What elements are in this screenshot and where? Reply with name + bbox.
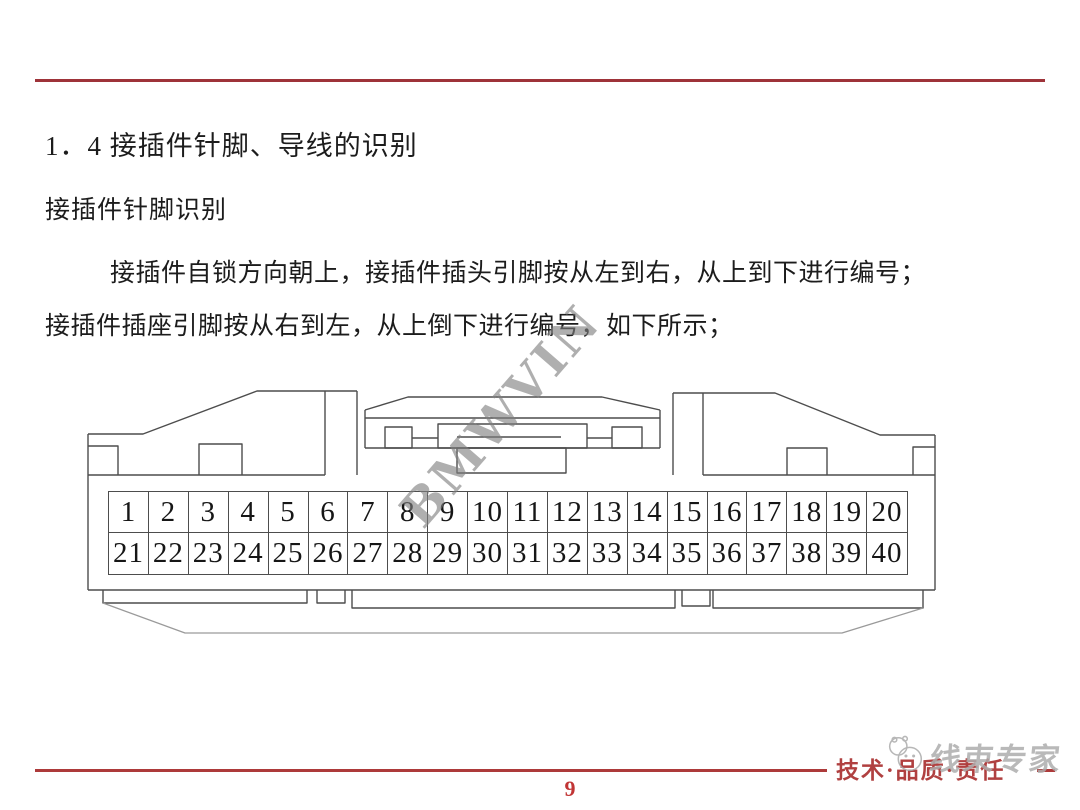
pin-cell-4: 4 — [229, 492, 269, 533]
pin-cell-21: 21 — [109, 533, 149, 574]
pin-cell-2: 2 — [149, 492, 189, 533]
pin-cell-14: 14 — [628, 492, 668, 533]
pin-cell-35: 35 — [668, 533, 708, 574]
pin-cell-31: 31 — [508, 533, 548, 574]
pin-cell-20: 20 — [867, 492, 907, 533]
paragraph-line-2: 接插件插座引脚按从右到左，从上倒下进行编号，如下所示； — [45, 306, 734, 342]
pin-cell-40: 40 — [867, 533, 907, 574]
pin-cell-9: 9 — [428, 492, 468, 533]
pin-cell-30: 30 — [468, 533, 508, 574]
brand-watermark: 线束专家 — [882, 731, 1062, 781]
slide-page: 1．4 接插件针脚、导线的识别 接插件针脚识别 接插件自锁方向朝上，接插件插头引… — [0, 0, 1080, 810]
bottom-divider-rule — [35, 769, 827, 772]
section-heading: 1．4 接插件针脚、导线的识别 — [45, 124, 418, 163]
pin-cell-32: 32 — [548, 533, 588, 574]
page-number: 9 — [0, 776, 1080, 802]
pin-cell-34: 34 — [628, 533, 668, 574]
pin-cell-36: 36 — [708, 533, 748, 574]
pin-cell-5: 5 — [269, 492, 309, 533]
paragraph-line-1: 接插件自锁方向朝上，接插件插头引脚按从左到右，从上到下进行编号； — [110, 253, 926, 289]
pin-cell-6: 6 — [309, 492, 349, 533]
top-divider-rule — [35, 79, 1045, 82]
pin-cell-19: 19 — [827, 492, 867, 533]
pin-grid: 1234567891011121314151617181920212223242… — [108, 491, 908, 575]
pin-cell-13: 13 — [588, 492, 628, 533]
pin-cell-10: 10 — [468, 492, 508, 533]
pin-cell-24: 24 — [229, 533, 269, 574]
pin-cell-12: 12 — [548, 492, 588, 533]
pin-cell-7: 7 — [348, 492, 388, 533]
sub-heading: 接插件针脚识别 — [45, 190, 227, 226]
brand-name: 线束专家 — [928, 734, 1065, 779]
pin-cell-15: 15 — [668, 492, 708, 533]
pin-cell-17: 17 — [747, 492, 787, 533]
pin-cell-25: 25 — [269, 533, 309, 574]
pin-cell-38: 38 — [787, 533, 827, 574]
pin-cell-1: 1 — [109, 492, 149, 533]
pin-cell-33: 33 — [588, 533, 628, 574]
pin-cell-27: 27 — [348, 533, 388, 574]
pin-cell-28: 28 — [388, 533, 428, 574]
pin-cell-16: 16 — [708, 492, 748, 533]
pin-cell-22: 22 — [149, 533, 189, 574]
brand-mascot-icon — [882, 733, 928, 779]
pin-cell-8: 8 — [388, 492, 428, 533]
pin-cell-39: 39 — [827, 533, 867, 574]
pin-cell-37: 37 — [747, 533, 787, 574]
pin-cell-11: 11 — [508, 492, 548, 533]
pin-cell-26: 26 — [309, 533, 349, 574]
pin-cell-29: 29 — [428, 533, 468, 574]
pin-cell-23: 23 — [189, 533, 229, 574]
pin-cell-3: 3 — [189, 492, 229, 533]
pin-cell-18: 18 — [787, 492, 827, 533]
